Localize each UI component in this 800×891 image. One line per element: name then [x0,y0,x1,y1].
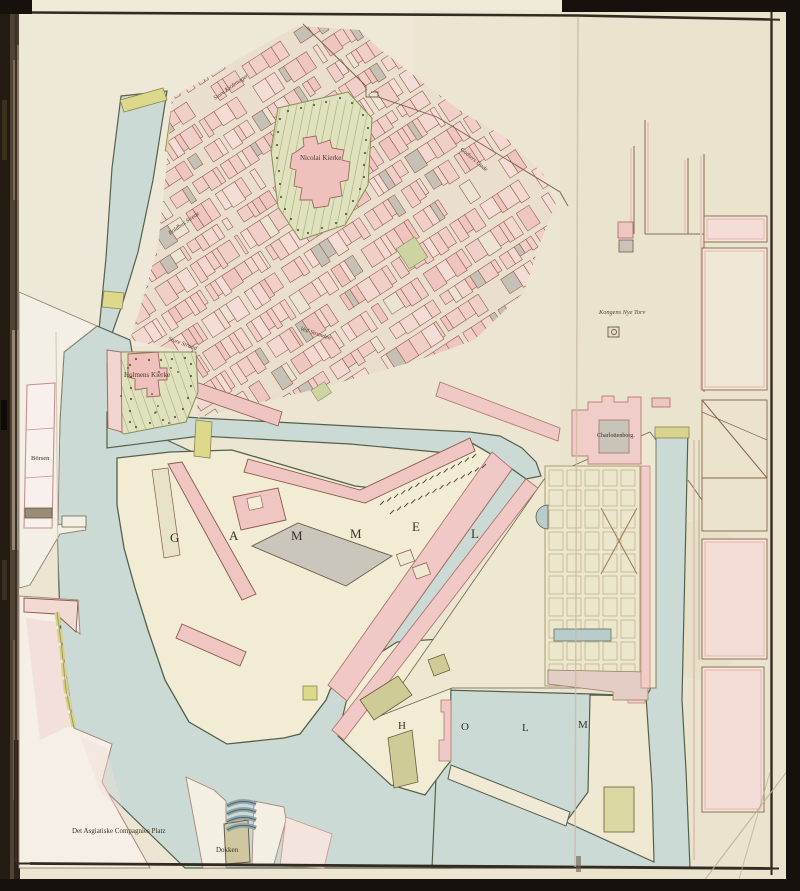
svg-text:O: O [461,721,469,733]
svg-text:Det Asgiatiske Compagnies Plat: Det Asgiatiske Compagnies Platz [72,827,166,835]
svg-text:M: M [350,526,362,541]
svg-text:H: H [398,720,406,732]
svg-text:Kongens Nye Torv: Kongens Nye Torv [598,309,645,316]
svg-text:L: L [471,526,479,541]
svg-text:Nicolai Kierke: Nicolai Kierke [300,154,341,162]
svg-text:E: E [412,519,420,534]
svg-text:M: M [291,528,303,543]
svg-text:Dokken: Dokken [216,846,239,854]
svg-text:G: G [170,530,179,545]
svg-text:Börsen: Börsen [31,455,50,462]
svg-text:Charlottenborg.: Charlottenborg. [597,433,635,439]
svg-text:A: A [229,528,239,543]
svg-text:L: L [522,722,529,734]
svg-text:M: M [578,719,588,731]
